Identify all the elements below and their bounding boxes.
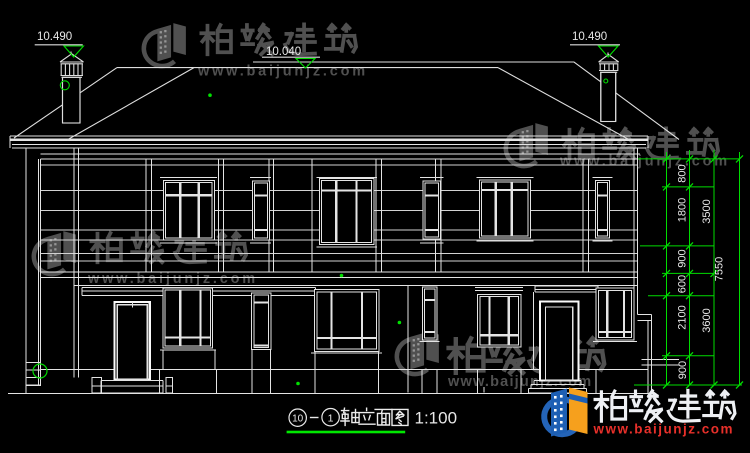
svg-text:www.baijunjz.com: www.baijunjz.com <box>197 64 368 80</box>
svg-text:www.baijunjz.com: www.baijunjz.com <box>593 422 735 437</box>
svg-text:600: 600 <box>676 275 688 293</box>
svg-text:3600: 3600 <box>701 308 713 332</box>
svg-text:7550: 7550 <box>713 257 725 281</box>
svg-text:1800: 1800 <box>676 198 688 222</box>
svg-text:1: 1 <box>328 412 334 424</box>
svg-text:800: 800 <box>676 164 688 182</box>
svg-text:3500: 3500 <box>701 199 713 223</box>
svg-text:10.040: 10.040 <box>266 46 301 58</box>
svg-text:900: 900 <box>677 361 689 379</box>
svg-text:900: 900 <box>676 249 688 267</box>
svg-text:10.490: 10.490 <box>572 31 607 43</box>
svg-text:2100: 2100 <box>676 305 688 329</box>
svg-text:10.490: 10.490 <box>37 31 72 43</box>
svg-text:www.baijunjz.com: www.baijunjz.com <box>559 154 730 170</box>
svg-text:1:100: 1:100 <box>415 409 458 428</box>
svg-text:10: 10 <box>292 414 304 425</box>
svg-text:www.baijunjz.com: www.baijunjz.com <box>87 271 258 287</box>
